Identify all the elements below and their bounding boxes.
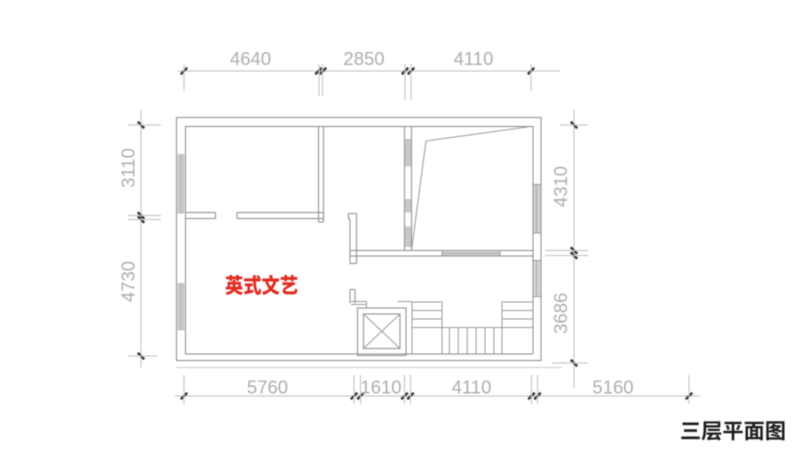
svg-text:4110: 4110 [454,48,494,69]
svg-text:5160: 5160 [592,377,633,398]
svg-text:1610: 1610 [360,377,401,398]
svg-text:4640: 4640 [230,48,271,69]
svg-text:4110: 4110 [452,377,492,398]
svg-text:4730: 4730 [118,261,139,302]
svg-text:3110: 3110 [118,148,139,188]
svg-text:3686: 3686 [550,293,571,334]
svg-text:4310: 4310 [550,166,571,207]
svg-text:5760: 5760 [247,377,288,398]
svg-text:2850: 2850 [343,48,384,69]
